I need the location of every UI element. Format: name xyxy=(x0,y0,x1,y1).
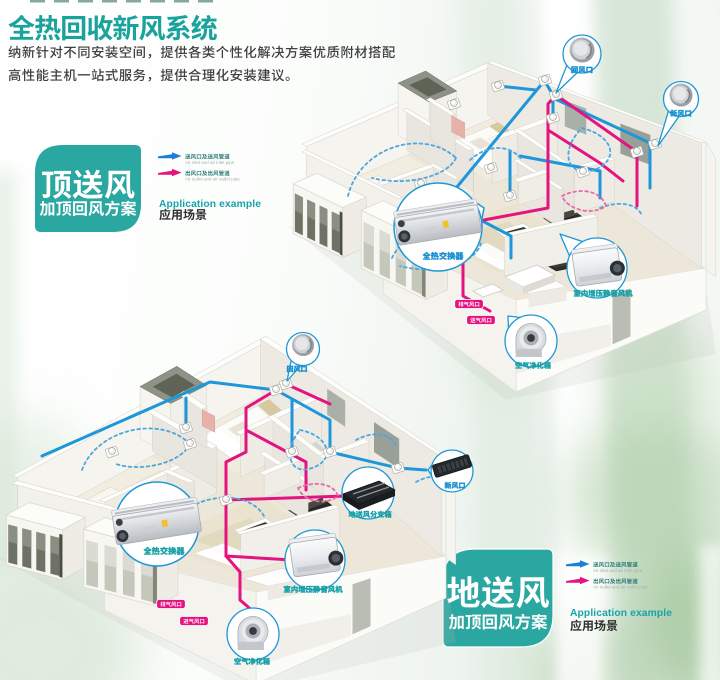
svg-text:Application example: Application example xyxy=(159,199,261,210)
svg-text:Air outlet and air outlet pipe: Air outlet and air outlet pipe xyxy=(593,584,648,589)
svg-text:Air inlet and air inlet pipe: Air inlet and air inlet pipe xyxy=(593,568,643,573)
svg-text:Air inlet and air inlet pipe: Air inlet and air inlet pipe xyxy=(185,160,235,165)
svg-text:Application example: Application example xyxy=(570,608,672,619)
svg-text:Air outlet and air outlet pipe: Air outlet and air outlet pipe xyxy=(185,176,240,181)
